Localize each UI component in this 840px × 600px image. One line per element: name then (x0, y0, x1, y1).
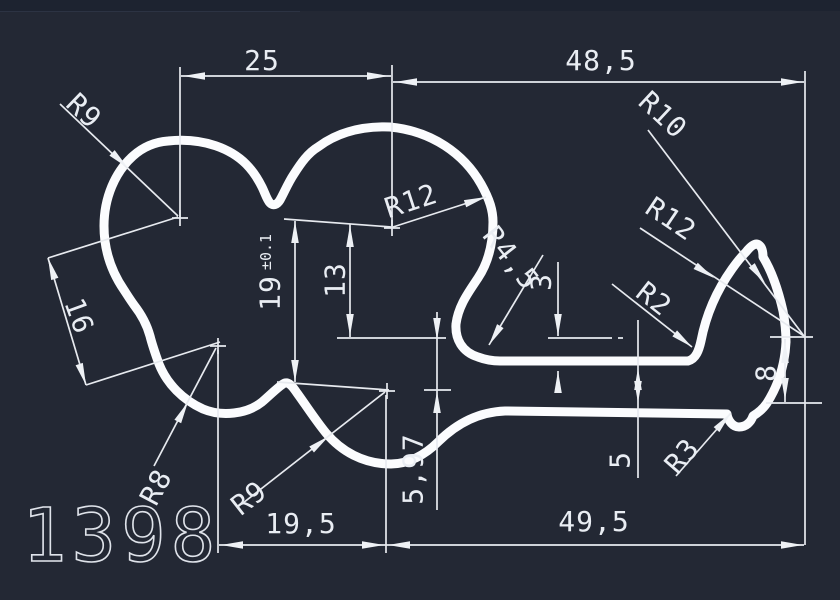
leader-arrow (486, 324, 504, 347)
dim-49-5-label: 49,5 (558, 505, 629, 538)
radius-r4-5-fillet[interactable]: R4,5 (476, 220, 546, 347)
radius-r12-top[interactable]: R12 (380, 177, 487, 227)
dim-overall-height[interactable]: 19 ±0.1 (254, 221, 299, 382)
dim-arrow (362, 541, 384, 549)
viewport-top-shadow (0, 0, 840, 11)
dim-arrow (221, 541, 243, 549)
dim-arrow (183, 72, 205, 80)
dim-arm-thickness[interactable]: 5 (604, 368, 642, 469)
dim-arrow (76, 363, 90, 386)
dim-bottom-left-width[interactable]: 19,5 (219, 507, 804, 549)
dim-48-5-label: 48,5 (565, 44, 636, 77)
dim-13-label: 13 (319, 262, 352, 298)
dim-25-label: 25 (244, 44, 280, 77)
drawing-canvas[interactable]: 25 48,5 19,5 49,5 19 ±0.1 13 3 (0, 0, 840, 600)
dim-5-label: 5 (604, 451, 637, 469)
radius-r12-top-label: R12 (380, 177, 441, 225)
dim-arrow (433, 391, 441, 413)
dim-arrow (291, 360, 299, 382)
dim-19-tolerance-label: ±0.1 (257, 234, 275, 270)
radius-r3-label: R3 (658, 432, 706, 481)
dim-16-label: 16 (57, 294, 100, 339)
dim-arrow (554, 314, 562, 336)
dim-arrow (44, 257, 58, 280)
dim-arrow (781, 541, 803, 549)
dim-foot-drop[interactable]: 5,97 (397, 318, 441, 505)
dim-arrow (346, 225, 354, 247)
radius-r2-label: R2 (630, 275, 678, 323)
dim-8-label: 8 (750, 364, 783, 382)
radius-r8-bottom[interactable]: R8 (133, 348, 216, 511)
dim-lobe-distance[interactable]: 16 (44, 257, 100, 386)
radius-r3-tip[interactable]: R3 (658, 411, 734, 481)
part-number[interactable]: 1398 (22, 493, 220, 579)
dim-arrow (388, 541, 410, 549)
radius-r9-top[interactable]: R9 (60, 87, 178, 216)
dim-arrow (291, 221, 299, 243)
dim-19-5-label: 19,5 (265, 507, 336, 540)
dim-arrow (367, 72, 389, 80)
dim-arrow (781, 78, 803, 86)
dim-top-left-width[interactable]: 25 (181, 44, 391, 80)
radius-r10-label: R10 (632, 85, 694, 146)
radius-r9-top-label: R9 (60, 87, 109, 136)
dim-arrow (554, 371, 562, 393)
radius-r2-corner[interactable]: R2 (612, 275, 694, 350)
leader-arrow (694, 263, 717, 281)
dim-arrow (395, 78, 417, 86)
dim-19-label: 19 (254, 275, 287, 311)
dim-top-right-width[interactable]: 48,5 (393, 44, 804, 86)
cad-viewport[interactable]: 25 48,5 19,5 49,5 19 ±0.1 13 3 (0, 0, 840, 600)
dim-5-97-label: 5,97 (397, 433, 430, 504)
radius-r12-hook-label: R12 (640, 190, 703, 247)
dim-arrow (346, 314, 354, 336)
dim-arrow (433, 318, 441, 340)
dim-inner-height[interactable]: 13 (319, 224, 354, 337)
dim-bottom-right-width[interactable]: 49,5 (388, 505, 803, 549)
dim-arrow (634, 381, 642, 403)
